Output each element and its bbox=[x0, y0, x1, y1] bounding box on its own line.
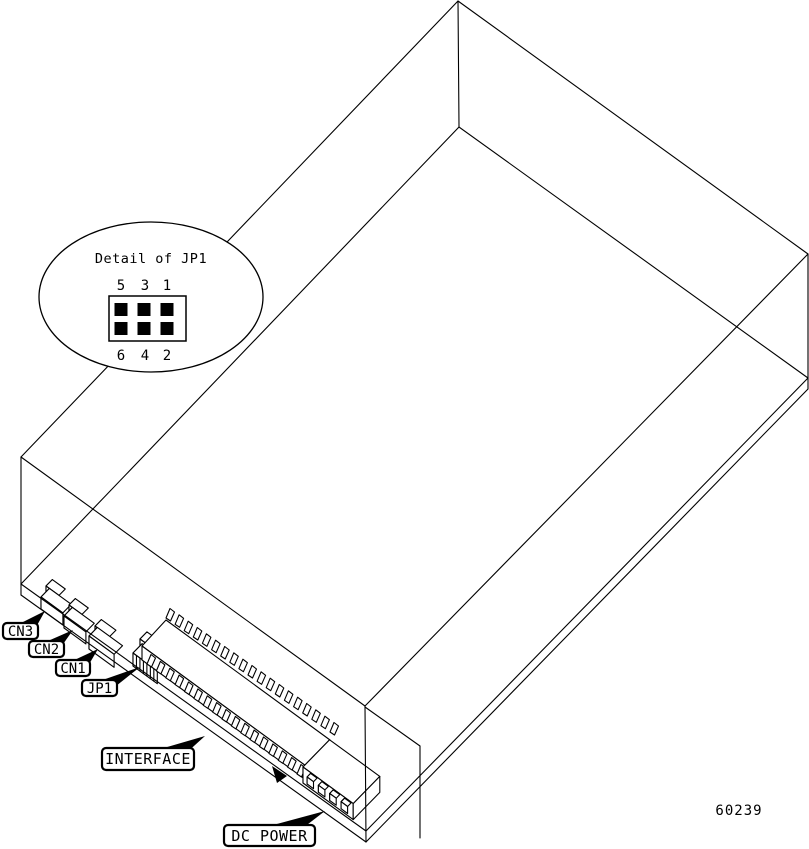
jp1-pin bbox=[115, 303, 128, 316]
jp1-pin-number-1: 1 bbox=[163, 278, 171, 294]
interface-pin-back bbox=[294, 697, 303, 710]
drive-illustration: Detail of JP1 5 3 1 6 4 2 CN3 CN2 bbox=[0, 0, 809, 849]
edge-corner-wall-top bbox=[365, 707, 420, 746]
jp1-pin-number-4: 4 bbox=[141, 348, 149, 364]
interface-pin-back bbox=[184, 621, 193, 634]
edge-top-right bbox=[458, 1, 808, 254]
edge-vertical-front bbox=[365, 706, 366, 842]
detail-callout: Detail of JP1 5 3 1 6 4 2 bbox=[39, 222, 263, 372]
chassis-wireframe bbox=[21, 1, 808, 842]
interface-pin-back bbox=[166, 609, 175, 622]
interface-pin-back bbox=[239, 659, 248, 672]
jp1-pin-number-6: 6 bbox=[117, 348, 125, 364]
jp1-pin-number-3: 3 bbox=[141, 278, 149, 294]
dc-power-label: DC POWER bbox=[231, 827, 308, 845]
figure-canvas: Detail of JP1 5 3 1 6 4 2 CN3 CN2 bbox=[0, 0, 809, 849]
interface-pin-back bbox=[330, 723, 339, 736]
callout-interface: INTERFACE bbox=[102, 736, 205, 770]
interface-pin-back bbox=[275, 685, 284, 698]
connector-blocks bbox=[41, 580, 380, 820]
cn2-label: CN2 bbox=[34, 642, 59, 658]
interface-label: INTERFACE bbox=[105, 750, 191, 768]
interface-pin-back bbox=[266, 678, 275, 691]
cn3-label: CN3 bbox=[8, 624, 33, 640]
detail-callout-title: Detail of JP1 bbox=[95, 251, 207, 267]
interface-pin-back bbox=[202, 634, 211, 647]
edge-bottom-front-left bbox=[21, 584, 366, 831]
figure-number: 60239 bbox=[715, 803, 762, 819]
interface-pin-back bbox=[321, 716, 330, 729]
edge-top-front-right bbox=[365, 254, 808, 706]
jp1-pin bbox=[138, 303, 151, 316]
callout-cn3: CN3 bbox=[3, 611, 45, 640]
interface-pin-back bbox=[303, 704, 312, 717]
edge-bottom-right bbox=[459, 127, 808, 378]
jp1-pin-number-2: 2 bbox=[163, 348, 171, 364]
jp1-pin bbox=[161, 322, 174, 335]
interface-pin-back bbox=[312, 710, 321, 723]
edge-bottom-front-right bbox=[366, 378, 808, 831]
interface-pin-back bbox=[230, 653, 239, 666]
interface-pin-back bbox=[248, 666, 257, 679]
interface-pin-back bbox=[284, 691, 293, 704]
cn1-label: CN1 bbox=[60, 661, 85, 677]
interface-pin-back bbox=[212, 640, 221, 653]
jp1-pin bbox=[161, 303, 174, 316]
interface-pin-back bbox=[257, 672, 266, 685]
edge-top-left bbox=[21, 1, 458, 457]
interface-pin-back bbox=[193, 628, 202, 641]
jp1-pin bbox=[138, 322, 151, 335]
jp1-pin bbox=[115, 322, 128, 335]
callout-dc-power: DC POWER bbox=[224, 811, 325, 846]
edge-vertical-back bbox=[458, 1, 459, 127]
interface-pin-back bbox=[221, 647, 230, 660]
jp1-pin-number-5: 5 bbox=[117, 278, 125, 294]
edge-slab-front-right bbox=[366, 389, 808, 842]
interface-pin-back bbox=[175, 615, 184, 628]
jp1-label: JP1 bbox=[87, 681, 112, 697]
interface-body-top bbox=[142, 620, 330, 766]
